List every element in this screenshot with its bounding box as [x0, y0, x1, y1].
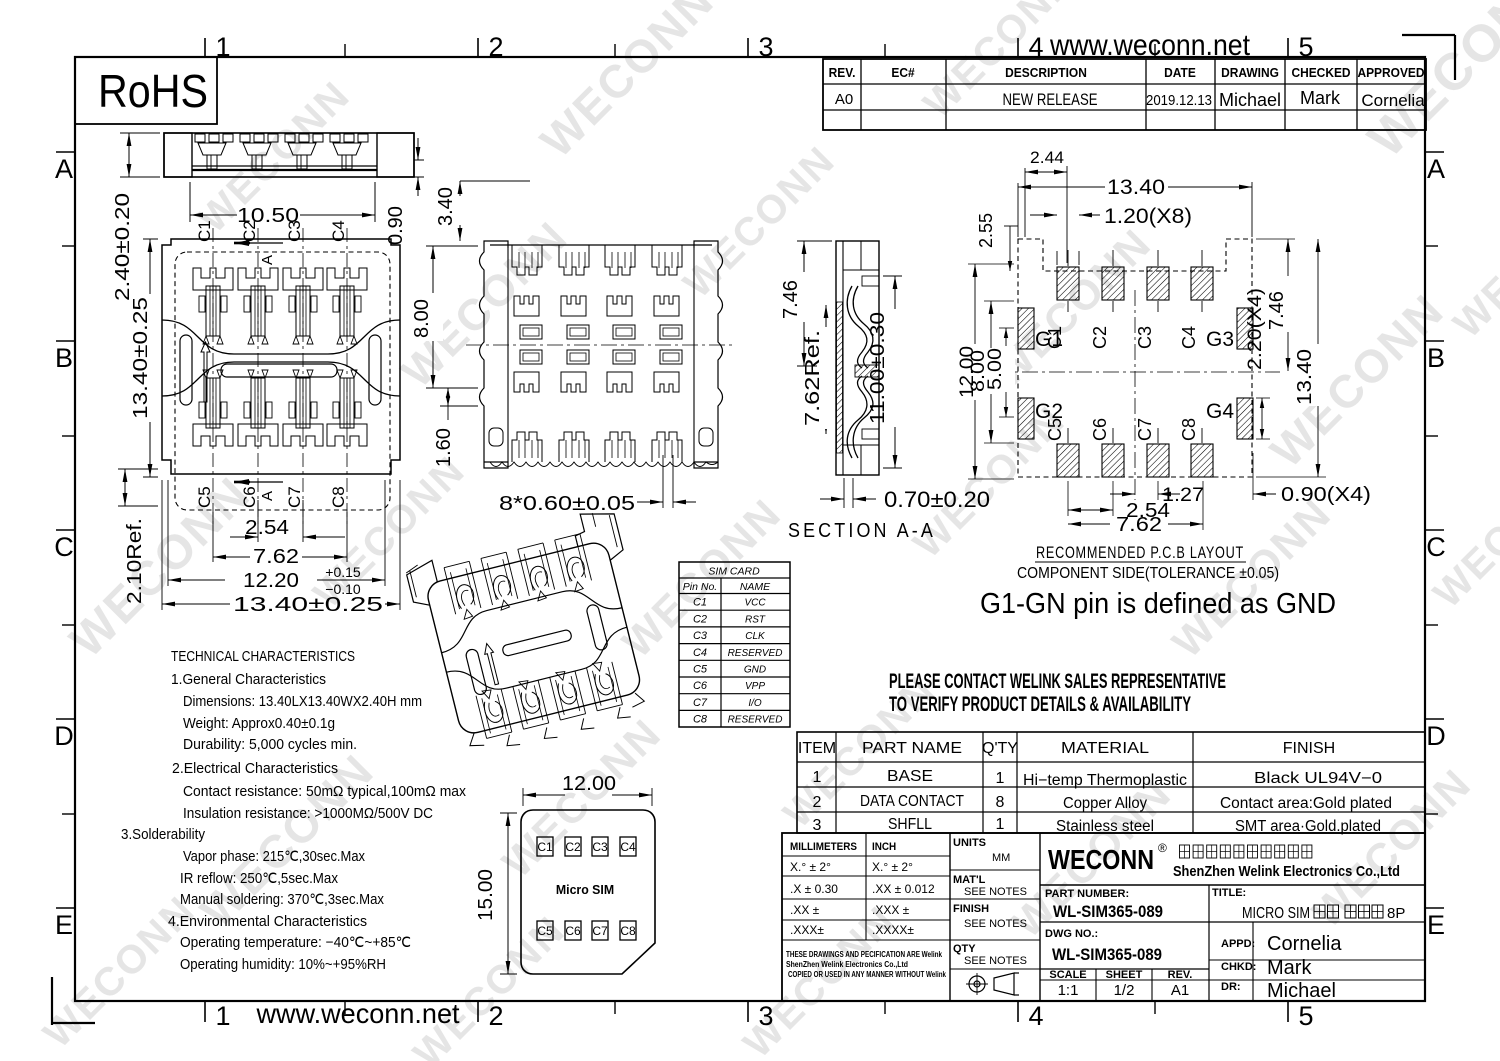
svg-text:1: 1	[215, 1001, 230, 1031]
svg-text:C5: C5	[195, 486, 214, 508]
svg-text:Insulation resistance: >1000M: Insulation resistance: >1000MΩ/500V DC	[183, 806, 433, 822]
svg-text:2.54: 2.54	[245, 517, 289, 539]
svg-text:RST: RST	[745, 614, 766, 625]
svg-text:11.00±0.30: 11.00±0.30	[867, 312, 889, 424]
svg-text:7.62: 7.62	[1116, 514, 1162, 536]
svg-text:ShenZhen Welink Electronics Co: ShenZhen Welink Electronics Co.,Ltd	[1173, 863, 1400, 880]
svg-text:MICRO SIM: MICRO SIM	[1242, 905, 1310, 922]
svg-text:2: 2	[488, 1001, 503, 1031]
svg-text:3: 3	[758, 32, 773, 62]
svg-text:5.00: 5.00	[985, 348, 1006, 390]
svg-text:C3: C3	[1135, 326, 1155, 349]
svg-text:7.46: 7.46	[1266, 291, 1288, 330]
svg-text:CHKD:: CHKD:	[1221, 961, 1256, 973]
svg-text:12.20: 12.20	[243, 570, 299, 592]
svg-text:GND: GND	[744, 665, 766, 676]
svg-text:NEW RELEASE: NEW RELEASE	[1003, 90, 1098, 109]
svg-text:WL-SIM365-089: WL-SIM365-089	[1052, 945, 1162, 964]
svg-text:APPD:: APPD:	[1221, 938, 1255, 950]
svg-text:2: 2	[488, 32, 503, 62]
svg-text:+0.15: +0.15	[325, 564, 361, 580]
svg-text:REV.: REV.	[1168, 969, 1193, 981]
svg-text:SEE NOTES: SEE NOTES	[964, 955, 1027, 967]
svg-text:4: 4	[1028, 32, 1043, 62]
svg-text:TECHNICAL CHARACTERISTICS: TECHNICAL CHARACTERISTICS	[171, 649, 355, 665]
svg-text:Durability: 5,000 cycles min: Durability: 5,000 cycles min.	[183, 737, 357, 753]
svg-text:C7: C7	[285, 486, 304, 508]
svg-text:RESERVED: RESERVED	[728, 715, 783, 726]
svg-text:1/2: 1/2	[1114, 982, 1135, 999]
svg-text:C8: C8	[329, 486, 348, 508]
svg-text:WECONN: WECONN	[1048, 844, 1154, 875]
svg-text:7.62: 7.62	[253, 546, 299, 568]
svg-text:2.40±0.20: 2.40±0.20	[112, 193, 134, 301]
svg-text:8P: 8P	[1387, 905, 1405, 922]
svg-text:E: E	[55, 910, 73, 940]
svg-text:1.20(X8): 1.20(X8)	[1104, 205, 1192, 228]
svg-text:X.° ± 2°: X.° ± 2°	[872, 860, 913, 874]
svg-text:D: D	[54, 721, 74, 751]
svg-text:1: 1	[996, 816, 1005, 833]
svg-text:IR reflow: 250℃,5sec.Max: IR reflow: 250℃,5sec.Max	[180, 871, 339, 887]
svg-text:SIM CARD: SIM CARD	[708, 566, 760, 578]
svg-text:C7: C7	[1135, 418, 1155, 441]
svg-text:2019.12.13: 2019.12.13	[1146, 92, 1212, 109]
svg-text:8: 8	[996, 794, 1005, 811]
svg-text:RECOMMENDED P.C.B LAYOUT: RECOMMENDED P.C.B LAYOUT	[1036, 543, 1244, 562]
svg-text:BASE: BASE	[887, 768, 933, 785]
svg-text:4.Environmental Characteristi: 4.Environmental Characteristics	[168, 914, 367, 930]
svg-text:.XXX±: .XXX±	[790, 923, 824, 937]
svg-text:C6: C6	[1090, 418, 1110, 441]
svg-text:TO VERIFY PRODUCT DETAILS & AV: TO VERIFY PRODUCT DETAILS & AVAILABILITY	[889, 693, 1191, 716]
svg-text:Copper Alloy: Copper Alloy	[1063, 795, 1147, 812]
svg-text:Manual soldering: 370℃,3sec.M: Manual soldering: 370℃,3sec.Max	[180, 892, 385, 908]
svg-text:C7: C7	[693, 697, 708, 709]
svg-text:SECTION A-A: SECTION A-A	[788, 520, 936, 542]
svg-text:EC#: EC#	[891, 66, 914, 81]
svg-text:C4: C4	[1179, 326, 1199, 349]
svg-text:THESE DRAWINGS AND PECIFICATIO: THESE DRAWINGS AND PECIFICATION ARE Weli…	[786, 950, 942, 959]
svg-text:C2: C2	[1090, 326, 1110, 349]
svg-text:1: 1	[813, 769, 822, 786]
svg-text:A0: A0	[835, 91, 853, 108]
svg-text:Micro SIM: Micro SIM	[556, 883, 614, 897]
svg-text:VPP: VPP	[745, 681, 765, 692]
svg-text:DATA CONTACT: DATA CONTACT	[860, 793, 964, 810]
svg-text:G2: G2	[1035, 400, 1063, 423]
svg-text:C3: C3	[285, 220, 304, 242]
svg-text:PLEASE CONTACT WELINK SALES RE: PLEASE CONTACT WELINK SALES REPRESENTATI…	[889, 670, 1226, 693]
svg-text:SHFLL: SHFLL	[888, 816, 932, 833]
svg-text:8.00: 8.00	[411, 299, 433, 338]
svg-text:1.General Characteristics: 1.General Characteristics	[171, 672, 326, 688]
svg-text:G3: G3	[1206, 328, 1234, 351]
svg-text:RESERVED: RESERVED	[728, 648, 783, 659]
svg-text:0.70±0.20: 0.70±0.20	[884, 487, 990, 512]
svg-text:12.00: 12.00	[562, 773, 616, 795]
svg-text:Hi−temp Thermoplastic: Hi−temp Thermoplastic	[1023, 772, 1187, 789]
svg-text:C3: C3	[592, 840, 608, 854]
svg-text:MM: MM	[992, 852, 1010, 864]
svg-text:C3: C3	[693, 630, 708, 642]
svg-text:4: 4	[1028, 1001, 1043, 1031]
svg-text:®: ®	[1158, 841, 1167, 855]
svg-text:COPIED OR USED IN ANY MANNER W: COPIED OR USED IN ANY MANNER WITHOUT Wel…	[788, 970, 946, 979]
svg-text:5: 5	[1298, 1001, 1313, 1031]
svg-text:1:1: 1:1	[1058, 982, 1079, 999]
svg-text:RoHS: RoHS	[98, 65, 208, 117]
svg-text:UNITS: UNITS	[953, 837, 986, 849]
svg-text:PART NAME: PART NAME	[862, 740, 962, 757]
svg-text:DWG NO.:: DWG NO.:	[1045, 928, 1098, 940]
svg-text:CHECKED: CHECKED	[1291, 66, 1350, 81]
svg-text:C6: C6	[565, 924, 581, 938]
svg-text:MILLIMETERS: MILLIMETERS	[790, 842, 857, 854]
svg-text:.X ± 0.30: .X ± 0.30	[790, 882, 838, 896]
svg-text:FINISH: FINISH	[953, 903, 989, 915]
svg-text:Michael: Michael	[1219, 90, 1281, 110]
svg-text:C6: C6	[240, 486, 259, 508]
svg-text:Vapor phase: 215℃,30sec.Max: Vapor phase: 215℃,30sec.Max	[183, 849, 366, 865]
svg-text:A: A	[259, 255, 276, 265]
svg-text:B: B	[1427, 343, 1445, 373]
svg-text:7.46: 7.46	[780, 280, 802, 319]
svg-text:QTY: QTY	[953, 943, 976, 955]
svg-text:Cornelia: Cornelia	[1267, 933, 1342, 955]
svg-text:A: A	[1427, 154, 1445, 184]
svg-text:FINISH: FINISH	[1283, 740, 1335, 757]
svg-text:ShenZhen Welink Electronics Co: ShenZhen Welink Electronics Co.,Ltd	[786, 960, 908, 969]
svg-text:B: B	[55, 343, 73, 373]
svg-text:13.40: 13.40	[1294, 349, 1316, 405]
svg-text:13.40±0.25: 13.40±0.25	[233, 594, 383, 616]
svg-text:DATE: DATE	[1164, 66, 1196, 81]
svg-text:.XXX ±: .XXX ±	[872, 903, 910, 917]
svg-text:SHEET: SHEET	[1106, 969, 1143, 981]
svg-text:www.weconn.net: www.weconn.net	[1049, 29, 1250, 62]
svg-text:C5: C5	[537, 924, 553, 938]
svg-text:2.Electrical Characteristics: 2.Electrical Characteristics	[172, 761, 338, 777]
svg-text:VCC: VCC	[744, 598, 766, 609]
svg-text:2.10Ref.: 2.10Ref.	[124, 518, 146, 604]
svg-text:APPROVED: APPROVED	[1357, 66, 1424, 81]
svg-text:C5: C5	[693, 664, 708, 676]
svg-text:Contact resistance: 50mΩ typ: Contact resistance: 50mΩ typical,100mΩ m…	[183, 784, 467, 800]
svg-text:13.40±0.25: 13.40±0.25	[130, 297, 152, 419]
svg-text:G4: G4	[1206, 400, 1234, 423]
svg-text:I/O: I/O	[748, 698, 762, 709]
svg-text:Mark: Mark	[1300, 88, 1341, 108]
svg-text:A: A	[55, 154, 73, 184]
svg-text:SEE NOTES: SEE NOTES	[964, 918, 1027, 930]
svg-text:C2: C2	[693, 613, 707, 625]
svg-text:2: 2	[813, 794, 822, 811]
svg-text:C8: C8	[620, 924, 636, 938]
svg-text:COMPONENT SIDE(TOLERANCE ±0.05: COMPONENT SIDE(TOLERANCE ±0.05)	[1017, 565, 1279, 582]
svg-text:15.00: 15.00	[475, 869, 497, 921]
svg-text:www.weconn.net: www.weconn.net	[256, 998, 460, 1029]
svg-text:C1: C1	[195, 220, 214, 242]
svg-text:C8: C8	[1179, 418, 1199, 441]
svg-text:5: 5	[1298, 32, 1313, 62]
svg-text:Operating humidity: 10%~+95%R: Operating humidity: 10%~+95%RH	[180, 957, 386, 973]
svg-text:C: C	[1426, 532, 1446, 562]
svg-text:G1: G1	[1035, 328, 1063, 351]
svg-text:PART NUMBER:: PART NUMBER:	[1045, 888, 1129, 900]
svg-text:C1: C1	[537, 840, 553, 854]
svg-text:DR:: DR:	[1221, 981, 1241, 993]
svg-text:Operating temperature: −40℃~+: Operating temperature: −40℃~+85℃	[180, 935, 411, 951]
svg-text:TITLE:: TITLE:	[1212, 887, 1246, 899]
svg-text:SEE NOTES: SEE NOTES	[964, 886, 1027, 898]
svg-text:1: 1	[996, 770, 1005, 787]
svg-text:3.Solderability: 3.Solderability	[121, 827, 206, 843]
svg-text:NAME: NAME	[740, 581, 771, 593]
svg-text:2.20(X4): 2.20(X4)	[1245, 288, 1266, 370]
svg-text:.XX ±: .XX ±	[790, 903, 820, 917]
svg-text:ITEM: ITEM	[798, 740, 836, 757]
svg-text:Black UL94V−0: Black UL94V−0	[1254, 770, 1382, 787]
svg-text:E: E	[1427, 910, 1445, 940]
svg-text:C8: C8	[693, 714, 708, 726]
svg-text:Q'TY: Q'TY	[982, 740, 1018, 757]
svg-text:C7: C7	[592, 924, 608, 938]
svg-text:INCH: INCH	[872, 842, 896, 854]
svg-text:C4: C4	[329, 220, 348, 242]
svg-text:MAT'L: MAT'L	[953, 874, 986, 886]
svg-text:Contact area:Gold plated: Contact area:Gold plated	[1220, 795, 1392, 812]
svg-text:DRAWING: DRAWING	[1221, 66, 1279, 81]
svg-text:X.° ± 2°: X.° ± 2°	[790, 860, 831, 874]
svg-text:REV.: REV.	[829, 66, 856, 81]
svg-text:SCALE: SCALE	[1049, 969, 1086, 981]
svg-text:.XX ± 0.012: .XX ± 0.012	[872, 882, 935, 896]
svg-text:C6: C6	[693, 680, 708, 692]
svg-text:DESCRIPTION: DESCRIPTION	[1005, 66, 1087, 81]
svg-text:Mark: Mark	[1267, 957, 1312, 979]
svg-text:CLK: CLK	[745, 631, 766, 642]
svg-text:8*0.60±0.05: 8*0.60±0.05	[499, 493, 635, 515]
svg-text:MATERIAL: MATERIAL	[1061, 740, 1149, 757]
svg-text:3: 3	[813, 817, 822, 834]
svg-text:C2: C2	[565, 840, 581, 854]
svg-text:C: C	[54, 532, 74, 562]
svg-text:7.62Ref.: 7.62Ref.	[802, 330, 824, 426]
svg-text:Michael: Michael	[1267, 980, 1336, 1002]
svg-text:C4: C4	[620, 840, 636, 854]
svg-text:C1: C1	[693, 597, 707, 609]
svg-text:Weight: Approx0.40±0.1g: Weight: Approx0.40±0.1g	[183, 716, 335, 732]
svg-text:3: 3	[758, 1001, 773, 1031]
svg-text:G1-GN pin is defined as GND: G1-GN pin is defined as GND	[980, 588, 1336, 620]
svg-text:A1: A1	[1171, 982, 1189, 999]
svg-text:Pin No.: Pin No.	[683, 581, 717, 593]
svg-text:.XXXX±: .XXXX±	[872, 923, 914, 937]
svg-text:2.44: 2.44	[1030, 148, 1064, 167]
svg-text:C2: C2	[240, 220, 259, 242]
svg-text:D: D	[1426, 721, 1446, 751]
svg-text:1.60: 1.60	[433, 428, 455, 467]
svg-text:3.40: 3.40	[435, 187, 457, 226]
svg-text:C4: C4	[693, 647, 707, 659]
svg-text:Cornelia: Cornelia	[1361, 91, 1425, 110]
svg-text:WL-SIM365-089: WL-SIM365-089	[1053, 902, 1163, 921]
svg-text:Dimensions: 13.40LX13.40WX2.40: Dimensions: 13.40LX13.40WX2.40H mm	[183, 694, 422, 710]
svg-text:13.40: 13.40	[1107, 176, 1165, 199]
svg-text:0.90(X4): 0.90(X4)	[1281, 484, 1371, 506]
svg-text:A: A	[259, 491, 276, 501]
svg-text:2.55: 2.55	[976, 213, 996, 248]
